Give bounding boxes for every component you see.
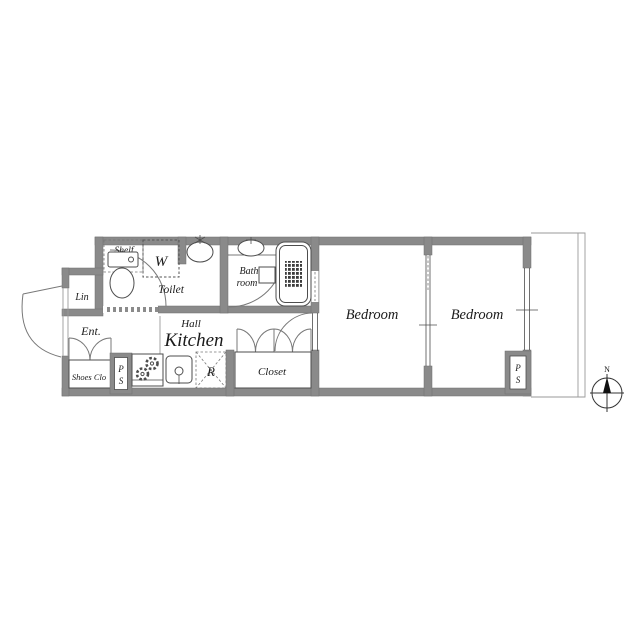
partition-bedrooms [419,255,437,366]
toilet-label: Toilet [158,284,185,296]
closet-folding-doors [237,329,311,352]
bedroom2-label: Bedroom [451,307,504,323]
toilet-icon [108,252,138,298]
compass-icon: N [590,365,624,412]
linen-label: Lin [74,292,88,303]
kitchen-label: Kitchen [163,330,223,351]
entrance-label: Ent. [80,324,101,338]
bathtub-icon [276,242,311,306]
ps-right-s: S [516,375,521,385]
bath-shelf-icon [259,267,275,283]
shoes-closet-label: Shoes Clo [72,372,106,382]
hall-label: Hall [180,318,201,330]
bath-label-2: room [237,278,258,289]
stove-icon [132,354,163,386]
bedrooms: Bedroom Bedroom P S [346,255,538,394]
fridge-label: R [206,364,215,379]
shoes-closet-doors [69,338,111,360]
kitchen-sink-icon [166,356,192,384]
bath-room: Bath room [228,237,319,307]
ps-right-p: P [514,363,521,373]
closet-label: Closet [258,366,287,378]
ps-left-p: P [117,364,124,374]
floor-plan-page: Shelf W Toilet Bath room [0,0,640,640]
compass-north-label: N [604,365,610,374]
bath-label-1: Bath [240,266,259,277]
bedroom1-label: Bedroom [346,307,399,323]
window-balcony [516,268,538,350]
fridge-space: R [196,352,226,388]
toilet-room: Shelf W Toilet [103,235,213,313]
floor-plan-drawing: Shelf W Toilet Bath room [0,0,640,640]
duct-strip [312,271,319,302]
ps-box-left: P S [110,353,132,394]
closet: Closet [235,329,311,388]
ps-left-s: S [119,376,124,386]
entrance-door [22,286,68,357]
ps-box-right: P S [505,351,531,394]
washer-label: W [155,254,169,270]
balcony [531,233,585,397]
